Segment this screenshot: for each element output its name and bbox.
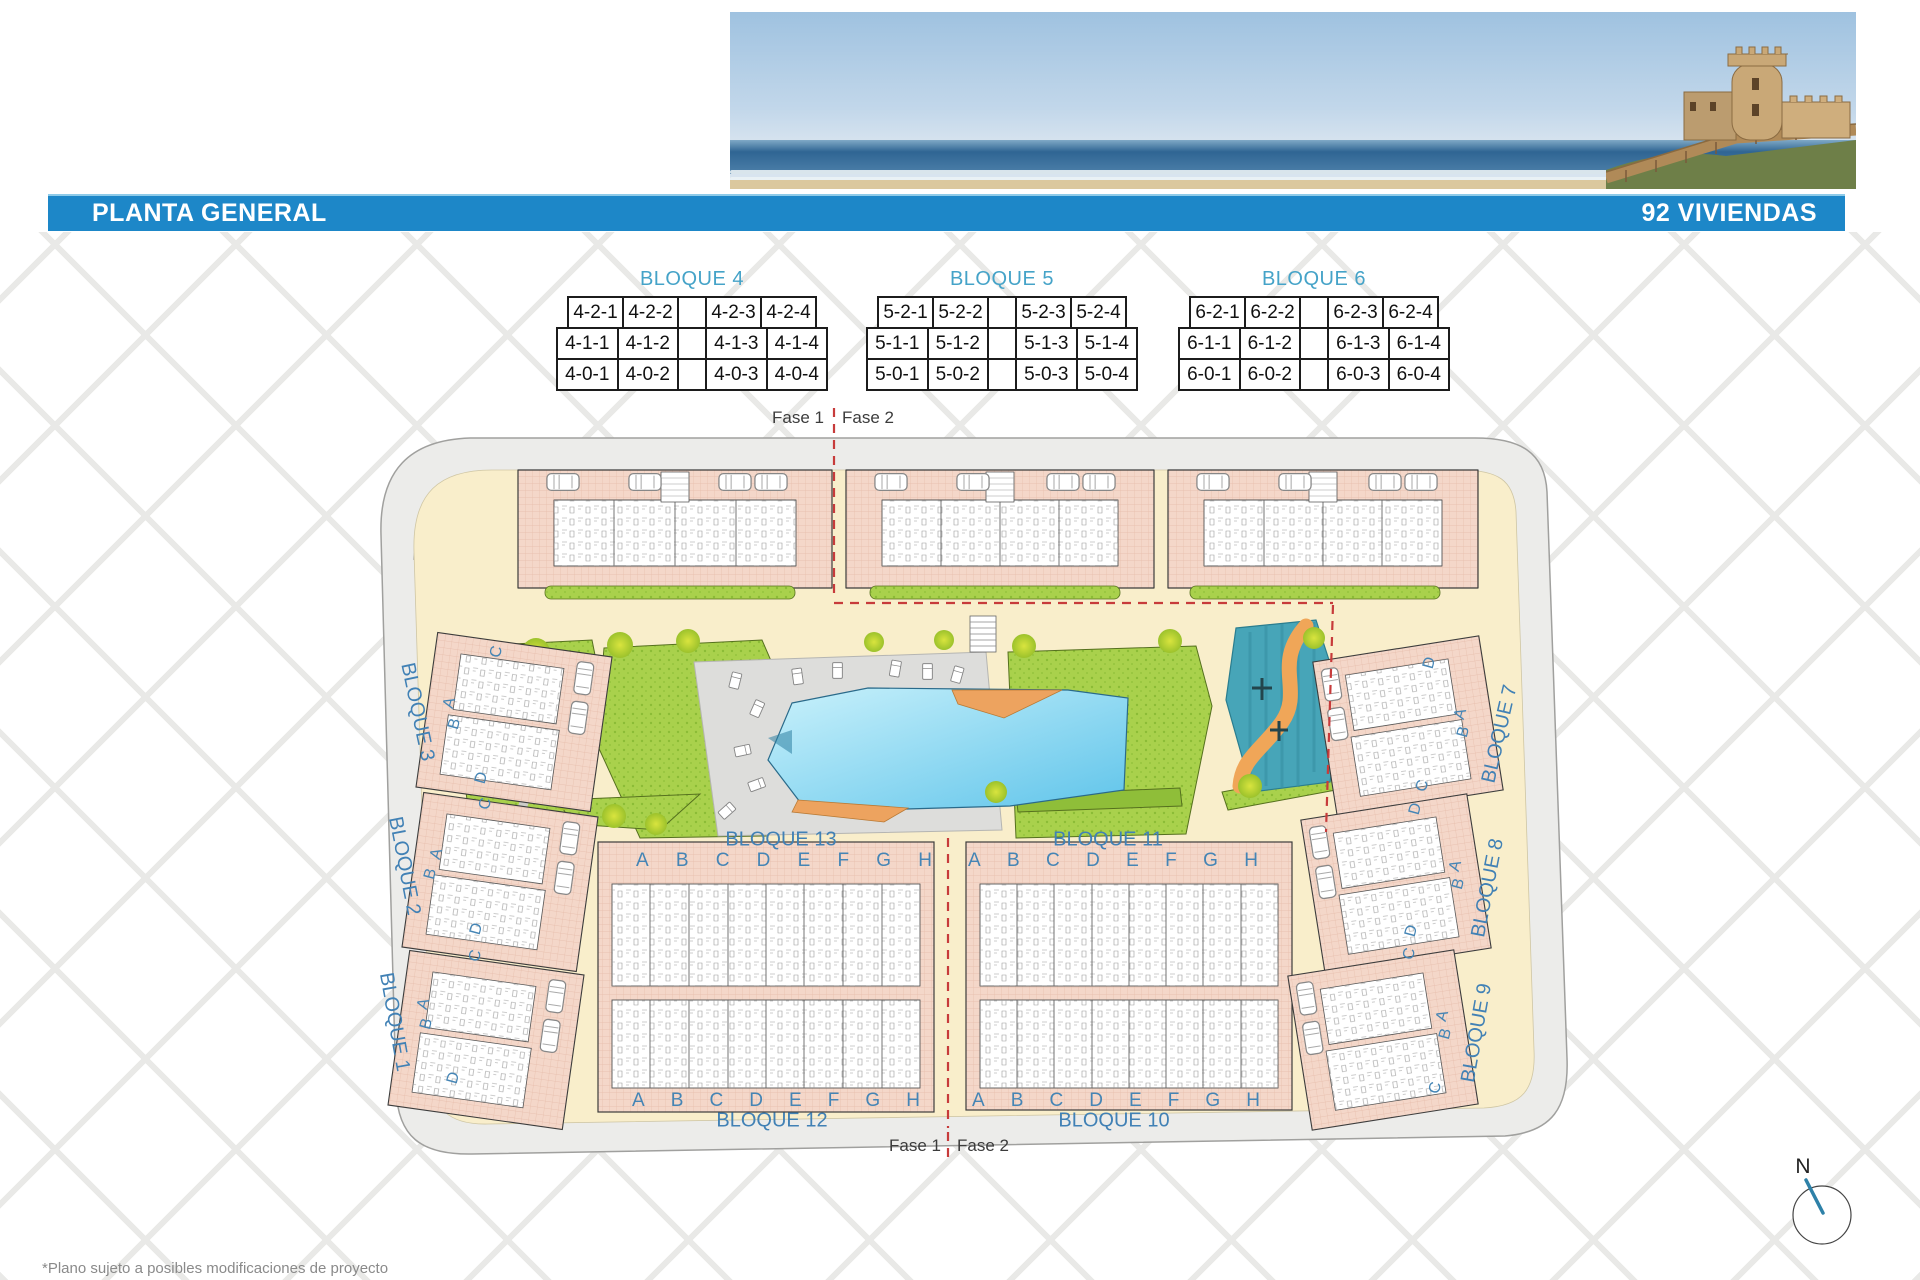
- unit-cell: 4-1-1: [556, 327, 619, 360]
- unit-letter: C: [1046, 850, 1060, 872]
- unit-letter: H: [906, 1090, 920, 1112]
- footnote: *Plano sujeto a posibles modificaciones …: [42, 1260, 388, 1277]
- unit-letter: D: [1089, 1090, 1103, 1112]
- block-label-12: BLOQUE 12: [716, 1110, 827, 1133]
- unit-cell: 5-0-3: [1015, 358, 1078, 391]
- table-row: 6-1-1 6-1-2 6-1-3 6-1-4: [1178, 327, 1450, 360]
- unit-letter: C: [716, 850, 730, 872]
- title-bar: PLANTA GENERAL 92 VIVIENDAS: [48, 194, 1845, 231]
- unit-cell: 6-1-2: [1239, 327, 1302, 360]
- unit-cell: 4-0-3: [705, 358, 768, 391]
- unit-letter: A: [968, 850, 981, 872]
- unit-cell: 6-0-4: [1388, 358, 1451, 391]
- unit-letter: A: [636, 850, 649, 872]
- unit-letter: A: [972, 1090, 985, 1112]
- table-title: BLOQUE 4: [556, 268, 828, 291]
- unit-cell: 6-1-1: [1178, 327, 1241, 360]
- unit-letter: H: [1244, 850, 1258, 872]
- compass-north-label: N: [1795, 1155, 1810, 1179]
- unit-letter: H: [1246, 1090, 1260, 1112]
- unit-letter: B: [671, 1090, 684, 1112]
- beach-photo: [730, 12, 1856, 189]
- unit-letters-bloque10: ABCDEFGH: [972, 1090, 1260, 1112]
- unit-letter: E: [1126, 850, 1139, 872]
- unit-cell: [677, 358, 707, 391]
- unit-cell: 5-2-2: [932, 296, 989, 329]
- block-label-10: BLOQUE 10: [1058, 1110, 1169, 1133]
- unit-letter: C: [1049, 1090, 1063, 1112]
- block-label-13: BLOQUE 13: [725, 829, 836, 852]
- unit-cell: 4-1-4: [766, 327, 829, 360]
- unit-cell: 4-1-2: [617, 327, 680, 360]
- unit-cell: 5-0-2: [927, 358, 990, 391]
- unit-cell: [1299, 358, 1329, 391]
- unit-letter: F: [1165, 850, 1177, 872]
- unit-cell: 4-0-2: [617, 358, 680, 391]
- unit-cell: 6-0-2: [1239, 358, 1302, 391]
- table-bloque-5: BLOQUE 5 5-2-1 5-2-2 5-2-3 5-2-4 5-1-1 5…: [866, 268, 1138, 391]
- unit-cell: 5-1-2: [927, 327, 990, 360]
- unit-cell: [677, 327, 707, 360]
- unit-cell: 5-0-4: [1076, 358, 1139, 391]
- unit-letter: B: [1007, 850, 1020, 872]
- phase-label-bottom-2: Fase 2: [957, 1136, 1009, 1156]
- table-bloque-4: BLOQUE 4 4-2-1 4-2-2 4-2-3 4-2-4 4-1-1 4…: [556, 268, 828, 391]
- table-row: 5-0-1 5-0-2 5-0-3 5-0-4: [866, 358, 1138, 391]
- unit-cell: [677, 296, 707, 329]
- table-row: 6-2-1 6-2-2 6-2-3 6-2-4: [1189, 296, 1439, 329]
- unit-cell: 5-1-3: [1015, 327, 1078, 360]
- unit-cell: 6-0-1: [1178, 358, 1241, 391]
- unit-letter: F: [828, 1090, 840, 1112]
- unit-cell: [987, 327, 1017, 360]
- page-title: PLANTA GENERAL: [92, 199, 327, 228]
- unit-cell: 5-2-4: [1070, 296, 1127, 329]
- unit-letter: C: [709, 1090, 723, 1112]
- unit-cell: 6-2-1: [1189, 296, 1246, 329]
- unit-cell: 5-2-3: [1015, 296, 1072, 329]
- unit-cell: 6-2-3: [1327, 296, 1384, 329]
- unit-letter: F: [1168, 1090, 1180, 1112]
- unit-letter: H: [918, 850, 932, 872]
- unit-cell: 4-2-1: [567, 296, 624, 329]
- unit-cell: 5-0-1: [866, 358, 929, 391]
- unit-letter: A: [632, 1090, 645, 1112]
- table-row: 5-1-1 5-1-2 5-1-3 5-1-4: [866, 327, 1138, 360]
- unit-letter: F: [837, 850, 849, 872]
- unit-cell: 4-2-4: [760, 296, 817, 329]
- unit-cell: 5-1-4: [1076, 327, 1139, 360]
- unit-cell: [1299, 327, 1329, 360]
- unit-letter: E: [798, 850, 811, 872]
- table-row: 4-0-1 4-0-2 4-0-3 4-0-4: [556, 358, 828, 391]
- table-row: 6-0-1 6-0-2 6-0-3 6-0-4: [1178, 358, 1450, 391]
- unit-cell: 6-2-4: [1382, 296, 1439, 329]
- unit-cell: [987, 358, 1017, 391]
- phase-label-bottom-1: Fase 1: [866, 1136, 941, 1156]
- castle-illustration: [1606, 12, 1856, 189]
- unit-cell: 6-2-2: [1244, 296, 1301, 329]
- unit-cell: 6-0-3: [1327, 358, 1390, 391]
- unit-letter: G: [1205, 1090, 1220, 1112]
- unit-letter: G: [876, 850, 891, 872]
- unit-letter: B: [676, 850, 689, 872]
- unit-cell: 6-1-3: [1327, 327, 1390, 360]
- unit-letter: D: [1086, 850, 1100, 872]
- unit-cell: 4-2-3: [705, 296, 762, 329]
- unit-letters-bloque12: ABCDEFGH: [632, 1090, 920, 1112]
- phase-label-top-2: Fase 2: [842, 408, 894, 428]
- table-row: 4-1-1 4-1-2 4-1-3 4-1-4: [556, 327, 828, 360]
- unit-letter: G: [1203, 850, 1218, 872]
- unit-letter: E: [789, 1090, 802, 1112]
- table-row: 5-2-1 5-2-2 5-2-3 5-2-4: [877, 296, 1127, 329]
- unit-cell: 4-0-4: [766, 358, 829, 391]
- unit-cell: 4-2-2: [622, 296, 679, 329]
- phase-label-top-1: Fase 1: [744, 408, 824, 428]
- unit-letter: D: [757, 850, 771, 872]
- unit-letter: E: [1129, 1090, 1142, 1112]
- units-count: 92 VIVIENDAS: [1641, 199, 1817, 228]
- unit-cell: [987, 296, 1017, 329]
- unit-letter: B: [1011, 1090, 1024, 1112]
- unit-cell: 4-1-3: [705, 327, 768, 360]
- table-row: 4-2-1 4-2-2 4-2-3 4-2-4: [567, 296, 817, 329]
- table-title: BLOQUE 5: [866, 268, 1138, 291]
- block-label-11: BLOQUE 11: [1053, 829, 1163, 852]
- unit-cell: 4-0-1: [556, 358, 619, 391]
- unit-cell: 5-1-1: [866, 327, 929, 360]
- unit-letters-bloque11: ABCDEFGH: [968, 850, 1258, 872]
- unit-cell: [1299, 296, 1329, 329]
- table-bloque-6: BLOQUE 6 6-2-1 6-2-2 6-2-3 6-2-4 6-1-1 6…: [1178, 268, 1450, 391]
- unit-letter: G: [865, 1090, 880, 1112]
- unit-letter: D: [749, 1090, 763, 1112]
- table-title: BLOQUE 6: [1178, 268, 1450, 291]
- unit-letters-bloque13: ABCDEFGH: [636, 850, 932, 872]
- unit-cell: 5-2-1: [877, 296, 934, 329]
- unit-cell: 6-1-4: [1388, 327, 1451, 360]
